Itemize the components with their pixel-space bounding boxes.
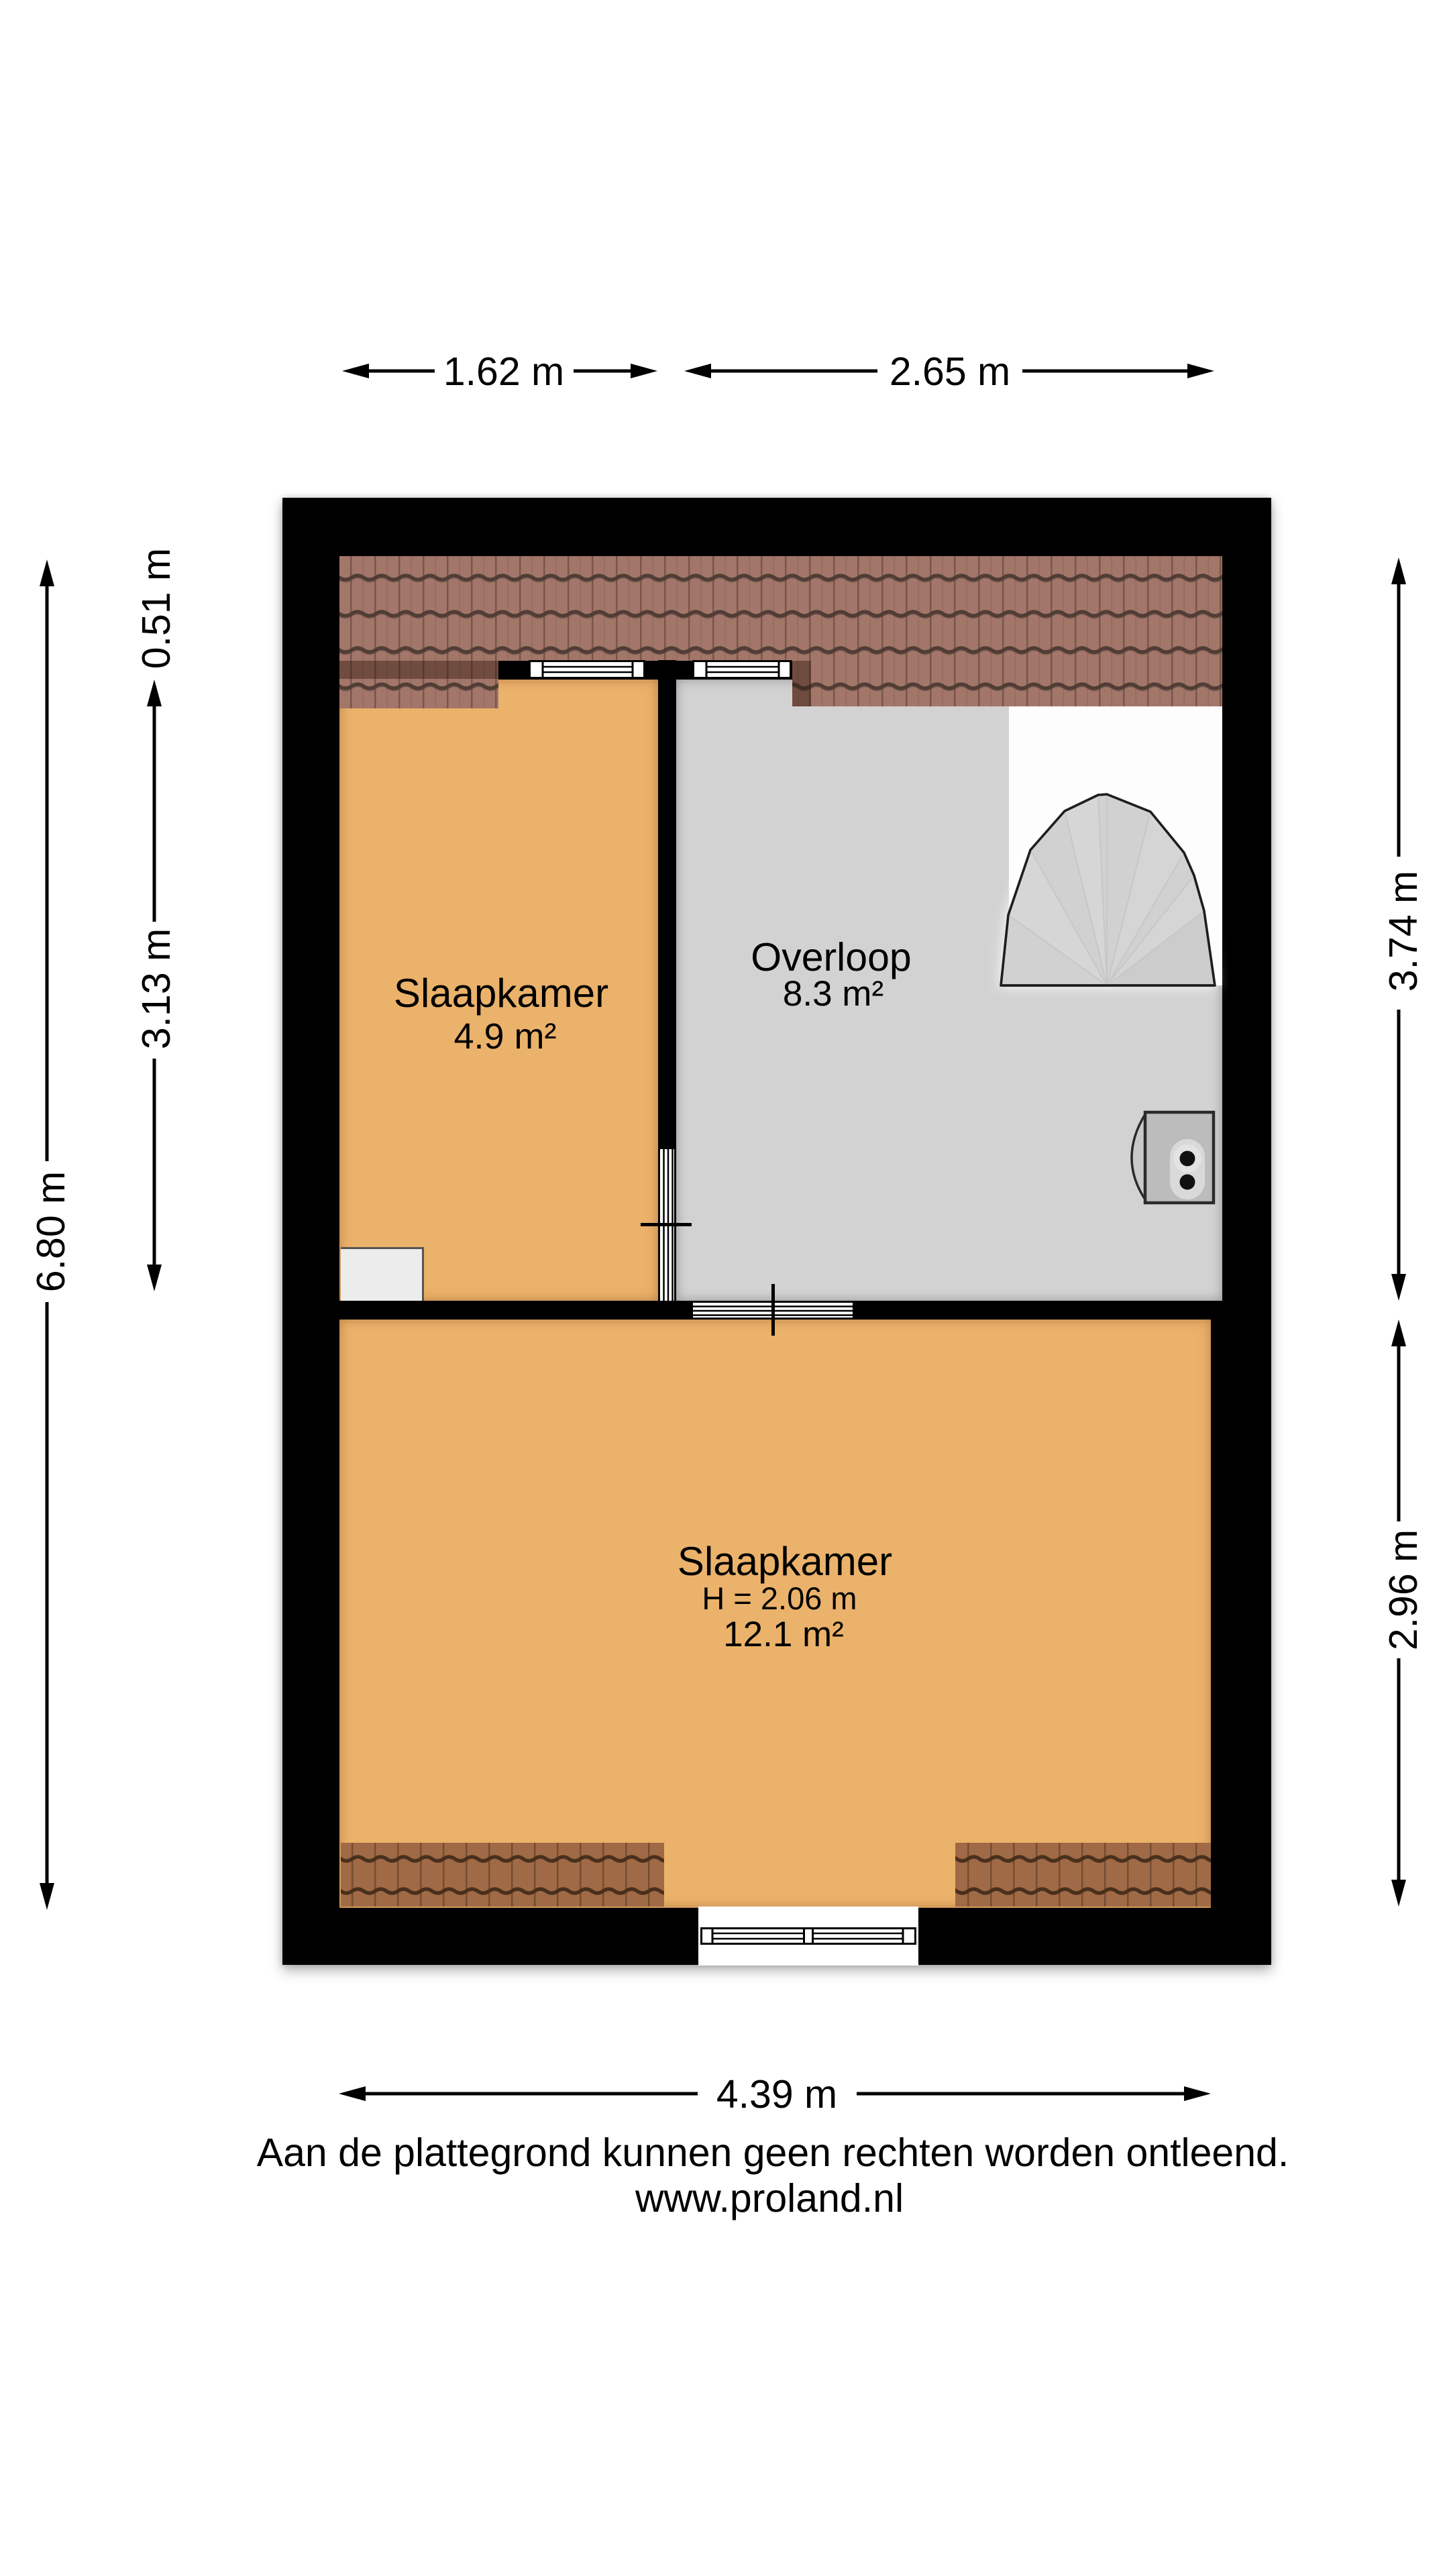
svg-text:3.13 m: 3.13 m	[134, 928, 178, 1049]
svg-text:2.96 m: 2.96 m	[1381, 1529, 1426, 1650]
svg-text:3.74 m: 3.74 m	[1381, 871, 1426, 991]
svg-text:6.80 m: 6.80 m	[29, 1171, 73, 1292]
svg-text:0.51 m: 0.51 m	[134, 548, 178, 669]
svg-text:1.62 m: 1.62 m	[443, 350, 564, 394]
svg-text:2.65 m: 2.65 m	[890, 350, 1010, 394]
svg-text:4.39 m: 4.39 m	[716, 2072, 837, 2116]
